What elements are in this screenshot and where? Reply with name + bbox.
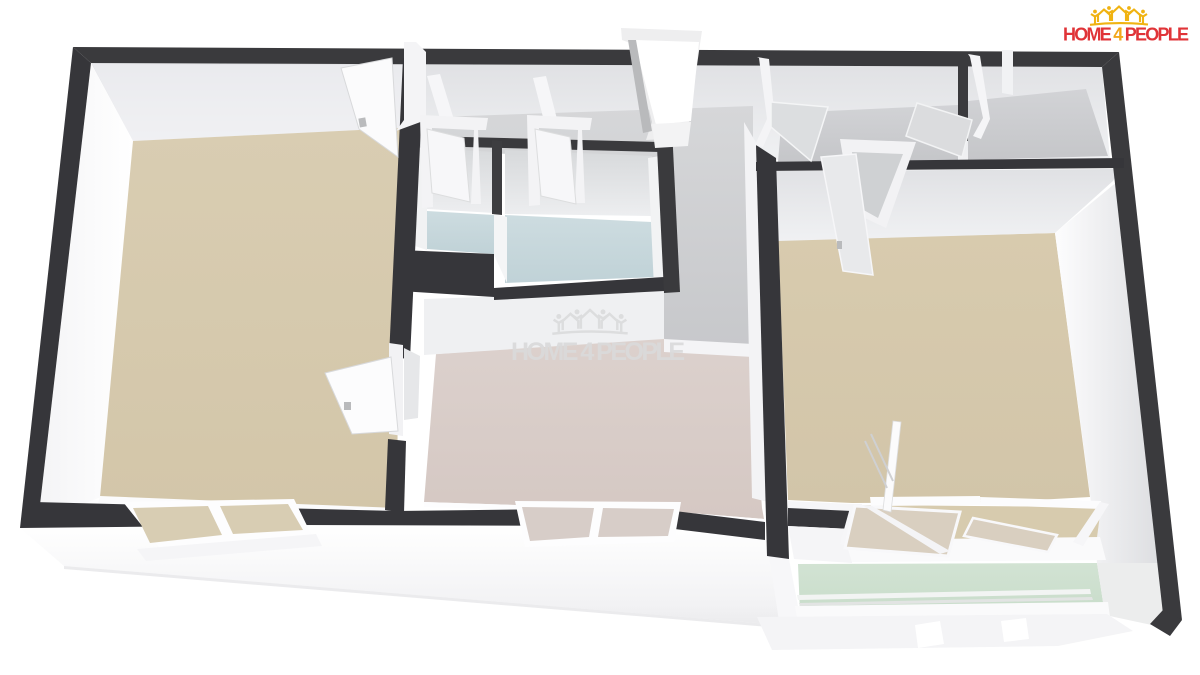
svg-text:HOME 4 PEOPLE: HOME 4 PEOPLE <box>1063 25 1189 45</box>
svg-text:HOME 4 PEOPLE: HOME 4 PEOPLE <box>511 338 685 366</box>
